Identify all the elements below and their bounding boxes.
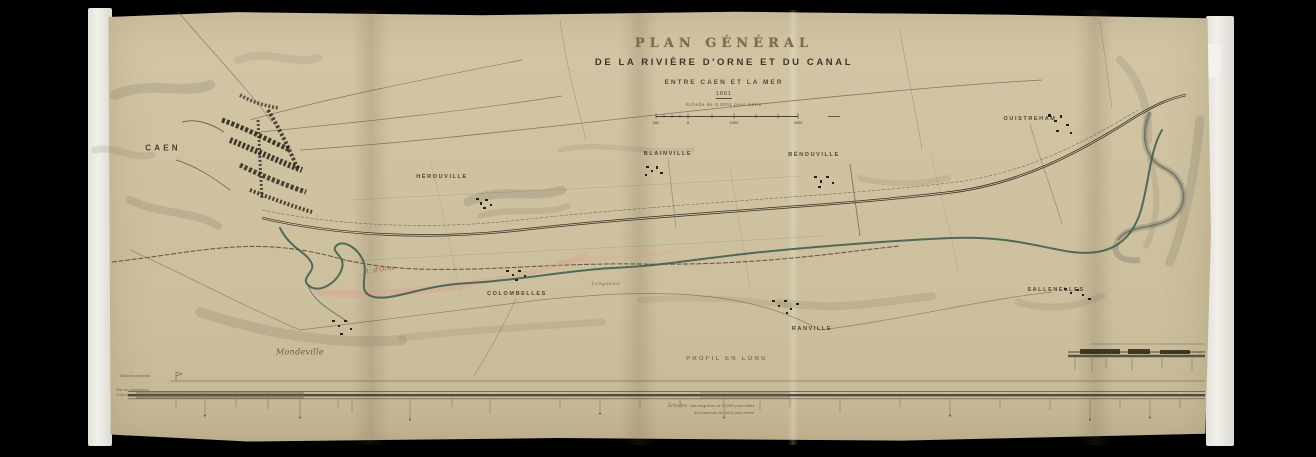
map-scale-label: Échelle de 0,0001 pour mètre xyxy=(686,102,762,107)
svg-text:2000: 2000 xyxy=(794,120,804,125)
caen-city-blocks xyxy=(176,95,312,212)
map-date: 1861 xyxy=(716,91,732,99)
profile-row-labels-2: Plan de comparaison Cotes du terrain xyxy=(116,388,149,397)
place-label-ranville: RANVILLE xyxy=(792,326,832,332)
profile-scale-line-2: des hauteurs de 0,002 pour mètre xyxy=(694,410,754,415)
scanned-map-photo: 500 0 1000 2000 xyxy=(0,0,1316,457)
place-label-benouville: BÉNOUVILLE xyxy=(788,152,839,158)
map-title: PLAN GÉNÉRAL xyxy=(635,36,813,51)
map-linework: 500 0 1000 2000 xyxy=(0,0,1316,457)
svg-text:1000: 1000 xyxy=(730,120,740,125)
profile-scale-line-1: des longueurs de 0,0002 pour mètre xyxy=(690,403,755,408)
place-label-sallenelles: SALLENELLES xyxy=(1027,287,1084,293)
map-between-line: ENTRE CAEN ET LA MER xyxy=(665,79,784,86)
place-label-caen: CAEN xyxy=(145,144,180,153)
place-label-herouville: HÉROUVILLE xyxy=(416,174,467,180)
railway-line xyxy=(112,110,1138,269)
profile-strip xyxy=(128,372,1205,421)
place-label-ouistreham: OUISTREHAM xyxy=(1004,116,1057,122)
village-blocks xyxy=(332,114,1091,335)
svg-text:0: 0 xyxy=(687,120,690,125)
profile-scales-heading: Échelles xyxy=(668,404,687,409)
hamlet-label: Longueval xyxy=(591,281,620,287)
profile-title: PROFIL EN LONG xyxy=(686,356,768,362)
place-label-colombelles: COLOMBELLES xyxy=(487,291,547,297)
place-label-blainville: BLAINVILLE xyxy=(644,151,692,157)
profile-row-label-1: Distances partielles xyxy=(120,374,150,379)
profile-row-label-3: Cotes du terrain xyxy=(116,393,141,397)
place-label-mondeville: Mondeville xyxy=(276,348,324,357)
profile-row-label-2: Plan de comparaison xyxy=(116,388,149,392)
svg-text:500: 500 xyxy=(653,120,660,125)
title-scale-bar xyxy=(656,114,840,120)
profile-scales-note: Échellesdes longueurs de 0,0002 pour mèt… xyxy=(668,403,755,415)
terrain-hachures xyxy=(95,56,1200,342)
map-subtitle: DE LA RIVIÈRE D'ORNE ET DU CANAL xyxy=(595,57,853,68)
title-scale-bar-numbers: 500 0 1000 2000 xyxy=(653,120,804,125)
profile-lock-detail xyxy=(1068,344,1205,372)
